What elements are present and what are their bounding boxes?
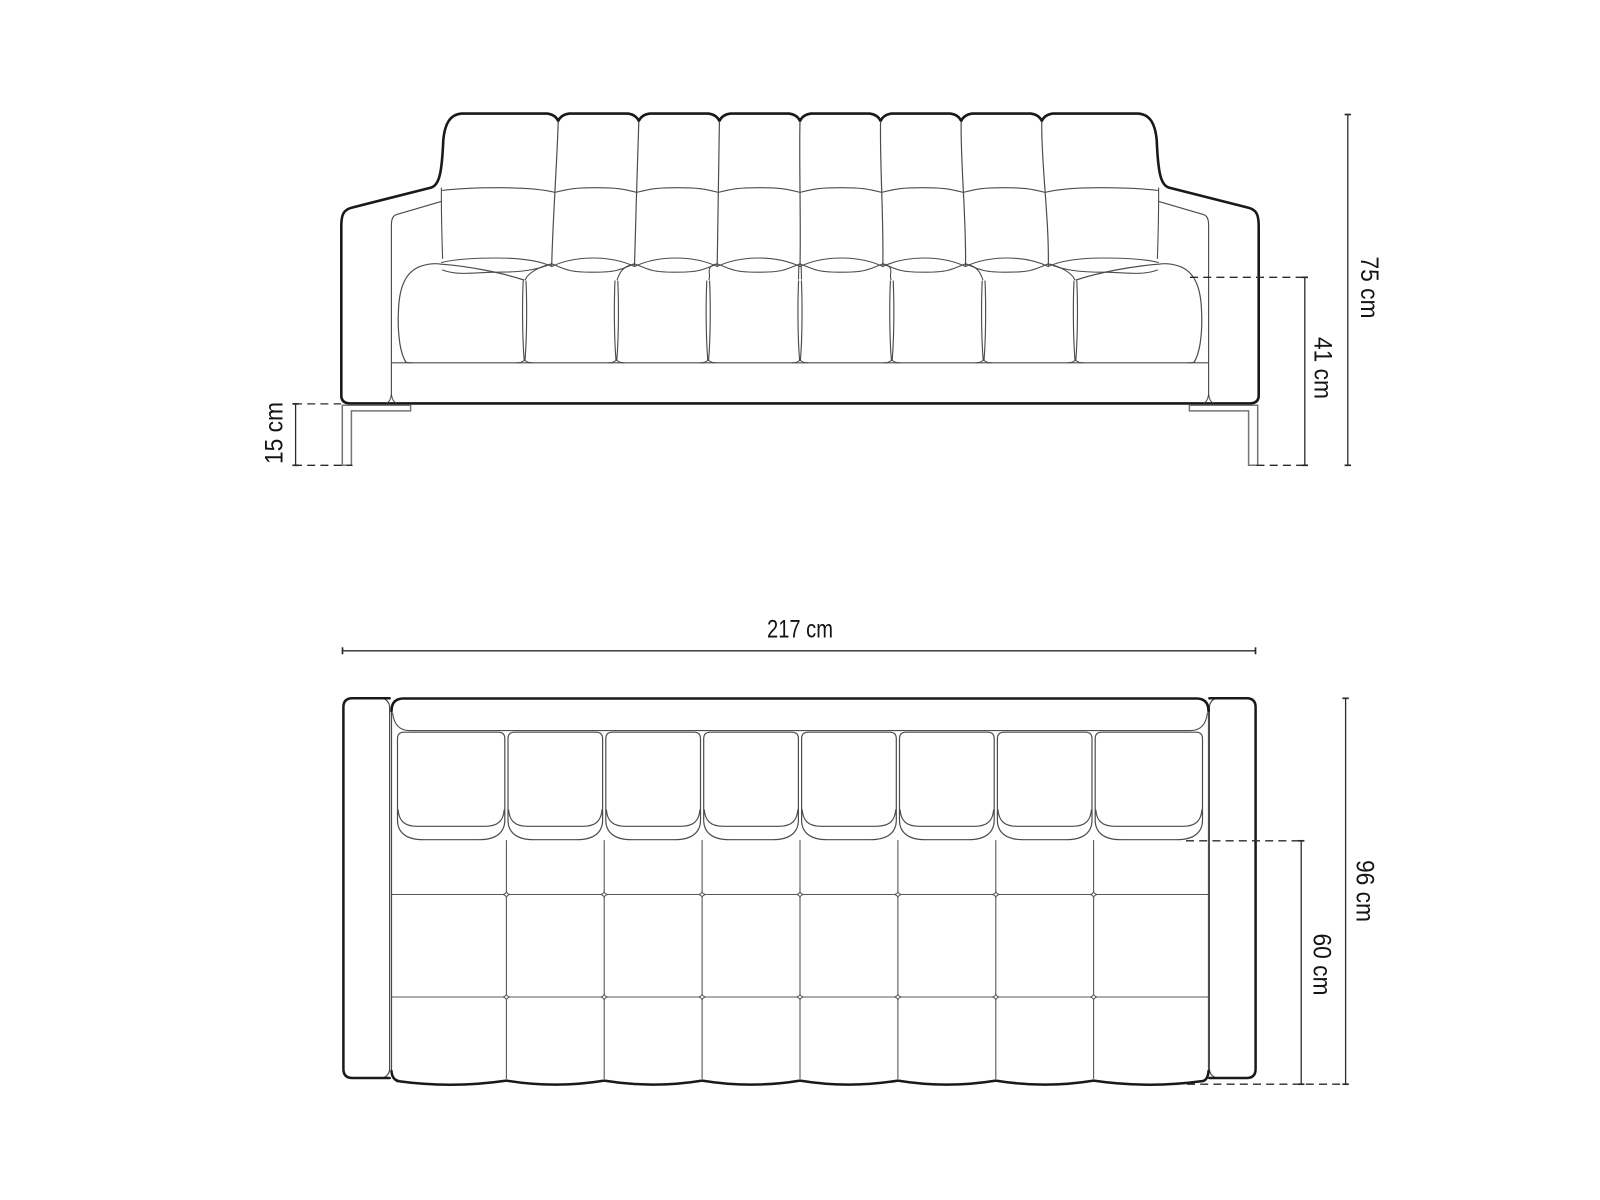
svg-text:217 cm: 217 cm — [767, 616, 833, 644]
svg-text:96 cm: 96 cm — [1350, 860, 1378, 922]
svg-text:15 cm: 15 cm — [260, 402, 288, 464]
svg-text:75 cm: 75 cm — [1355, 257, 1383, 319]
svg-text:41 cm: 41 cm — [1308, 337, 1336, 399]
svg-text:60 cm: 60 cm — [1307, 934, 1335, 996]
